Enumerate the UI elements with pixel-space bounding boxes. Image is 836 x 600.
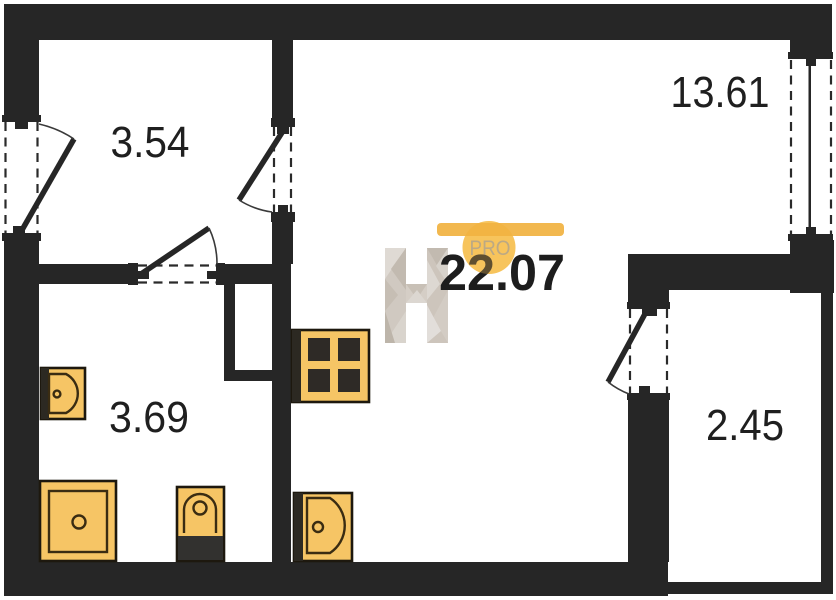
svg-text:2.45: 2.45: [706, 401, 784, 450]
svg-text:3.54: 3.54: [111, 118, 190, 167]
svg-text:13.61: 13.61: [671, 68, 770, 117]
svg-text:3.69: 3.69: [109, 393, 189, 442]
